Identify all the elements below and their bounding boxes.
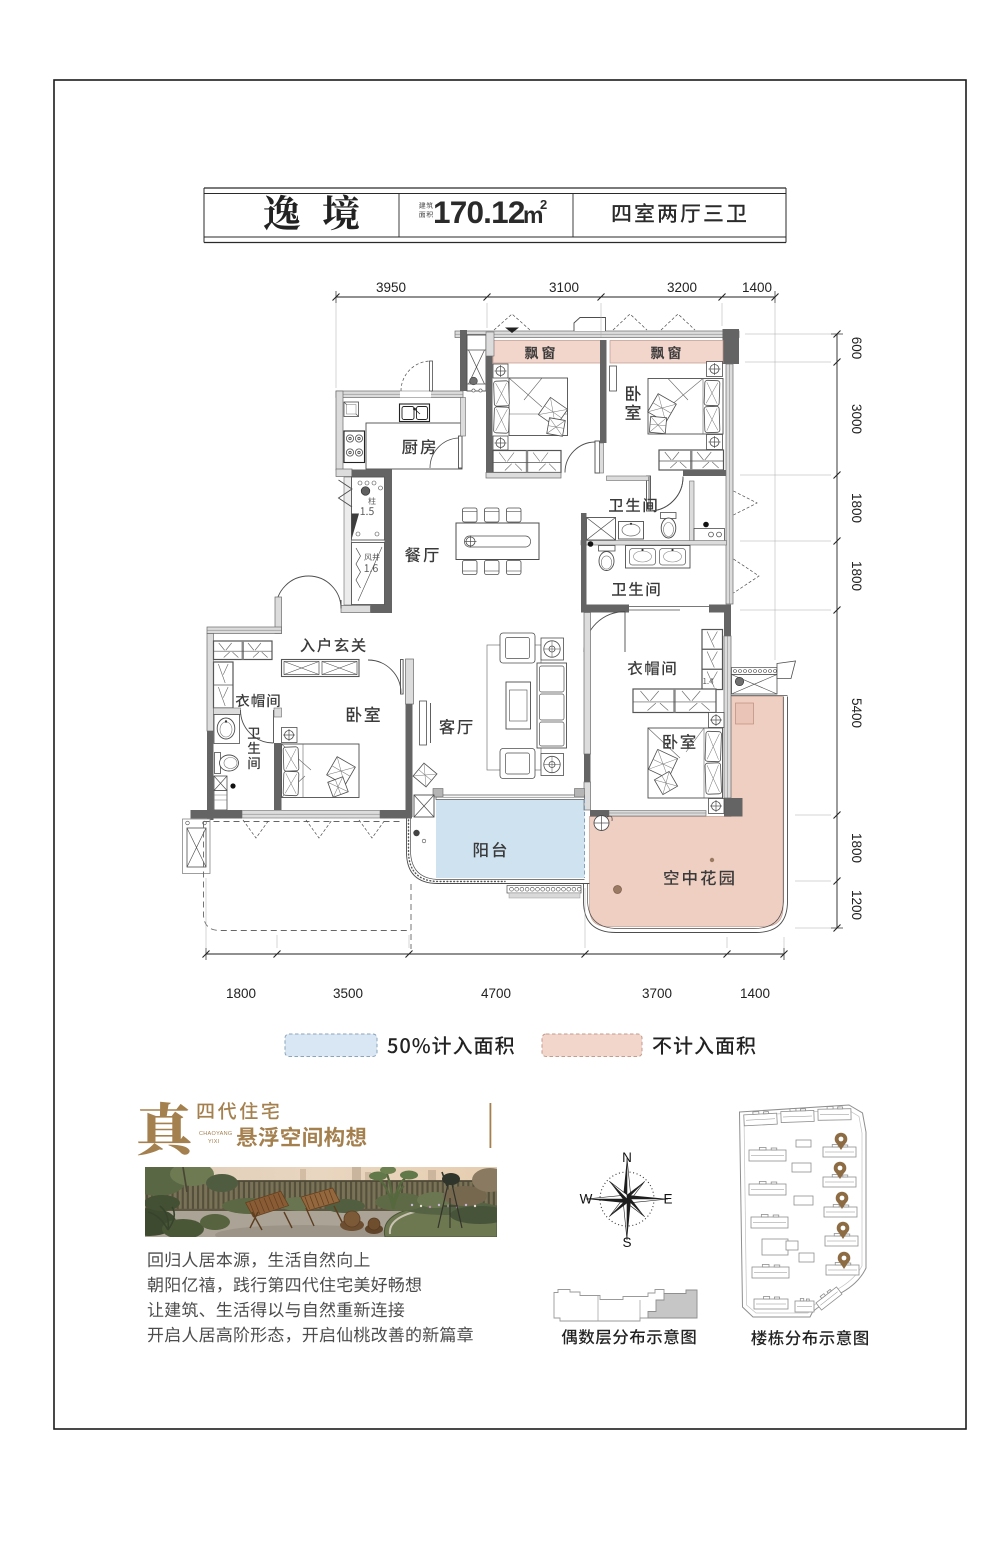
- svg-text:S: S: [622, 1235, 631, 1250]
- svg-text:1800: 1800: [849, 493, 864, 523]
- svg-text:3700: 3700: [642, 986, 672, 1001]
- svg-text:5400: 5400: [849, 698, 864, 728]
- svg-text:1800: 1800: [849, 833, 864, 863]
- svg-text:3100: 3100: [549, 280, 579, 295]
- svg-text:600: 600: [849, 337, 864, 360]
- svg-text:3200: 3200: [667, 280, 697, 295]
- svg-text:E: E: [663, 1192, 672, 1207]
- svg-text:3500: 3500: [333, 986, 363, 1001]
- svg-text:1200: 1200: [849, 890, 864, 920]
- svg-text:CHAOYANG: CHAOYANG: [199, 1131, 232, 1137]
- svg-text:N: N: [622, 1150, 632, 1165]
- svg-text:170.12: 170.12: [433, 194, 525, 230]
- svg-text:1800: 1800: [849, 561, 864, 591]
- svg-text:1400: 1400: [740, 986, 770, 1001]
- svg-text:1800: 1800: [226, 986, 256, 1001]
- svg-text:2: 2: [540, 197, 547, 212]
- svg-text:4700: 4700: [481, 986, 511, 1001]
- svg-text:1400: 1400: [742, 280, 772, 295]
- svg-text:YIXI: YIXI: [208, 1139, 220, 1145]
- svg-text:3000: 3000: [849, 404, 864, 434]
- svg-text:3950: 3950: [376, 280, 406, 295]
- svg-text:W: W: [580, 1192, 593, 1207]
